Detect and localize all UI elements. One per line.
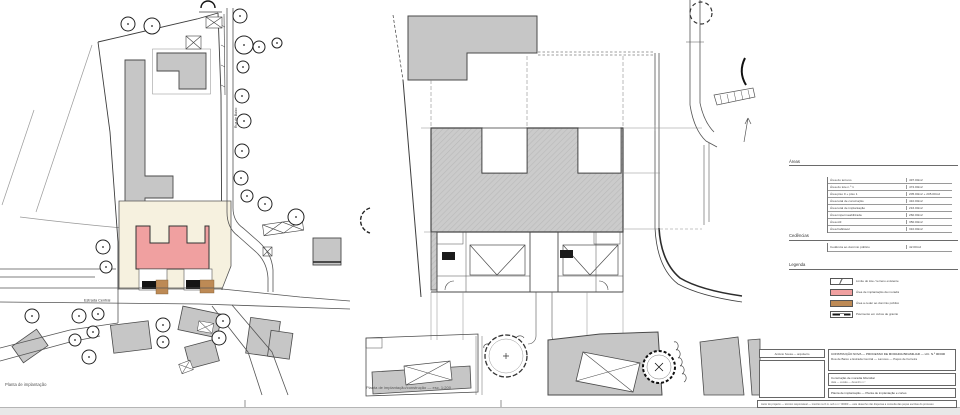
middle-plan: Planta de implantação/construção — esc. … xyxy=(361,0,760,396)
upper-existing-building xyxy=(408,16,537,80)
area-value: 205.00m2 + 205.00m2 xyxy=(906,192,952,196)
cessions-table: Cedência ao domínio público42.00m2 xyxy=(827,243,952,252)
list-item: Pavimento em cubos de granito xyxy=(830,310,958,318)
cession-strip xyxy=(200,280,214,293)
left-plan: Estrada Central Rua de Baixo Planta de i… xyxy=(0,1,350,395)
lower-wing xyxy=(431,232,623,292)
title-block: António Sousa — arquitecto CONSTRUÇÃO NO… xyxy=(757,347,959,408)
cessions-section-title: Cedências xyxy=(789,233,809,238)
cessions-rule xyxy=(789,240,958,241)
area-label: Área total de implantação xyxy=(828,206,906,210)
key-label: Pavimento em cubos de granito xyxy=(856,312,898,316)
areas-section-title: Áreas xyxy=(789,159,800,164)
key-label: Área de implantação da moradia xyxy=(856,290,899,294)
cession-strip xyxy=(156,280,168,294)
table-row: Área total de construção410.00m2 xyxy=(828,198,952,205)
paving-swatch xyxy=(830,311,853,318)
key-rule xyxy=(789,269,958,270)
area-label: Área habitável xyxy=(828,227,906,231)
cession-swatch xyxy=(830,300,853,307)
area-label: Área total de construção xyxy=(828,199,906,203)
area-value: 310.00m2 xyxy=(906,227,952,231)
area-label: Área do lote n.º 1 xyxy=(828,185,906,189)
contour-lines xyxy=(2,45,122,228)
areas-rule xyxy=(789,165,958,166)
area-value: 472.00m2 xyxy=(906,185,952,189)
walkway xyxy=(528,292,560,344)
work-label: Construção de moradia bifamiliar xyxy=(831,376,953,380)
areas-table: Área do terreno497.00m2 Área do lote n.º… xyxy=(827,177,952,233)
key-label: Limite do lote / terreno existente xyxy=(856,279,899,283)
table-row: Área do lote n.º 1472.00m2 xyxy=(828,184,952,191)
key-section-title: Legenda xyxy=(789,262,805,267)
sheet-margin xyxy=(0,407,960,415)
table-row: Área total de implantação216.00m2 xyxy=(828,205,952,212)
lot-swatch xyxy=(830,278,853,285)
list-item: Limite do lote / terreno existente xyxy=(830,277,958,285)
table-row: Área piso 0 + piso 1205.00m2 + 205.00m2 xyxy=(828,191,952,198)
table-row: Área do terreno497.00m2 xyxy=(828,177,952,184)
area-value: 216.00m2 xyxy=(906,206,952,210)
sheet-border xyxy=(245,400,501,407)
table-row: Área impermeabilizada260.00m2 xyxy=(828,212,952,219)
area-label: Área do terreno xyxy=(828,178,906,182)
drawing-sheet: { "colors": { "new_building_pink": "#f0a… xyxy=(0,0,960,415)
area-label: Área piso 0 + piso 1 xyxy=(828,192,906,196)
titleblock-footer: Autor do projecto — técnico responsável … xyxy=(757,400,957,408)
table-row: Cedência ao domínio público42.00m2 xyxy=(828,243,952,252)
project-address: Rua de Baixo e Estrada Central — Lamoso … xyxy=(831,357,953,362)
project-info-box: CONSTRUÇÃO NOVA — PROCESSO DE MORADIA BI… xyxy=(828,349,956,371)
area-value: 350.00m2 xyxy=(906,220,952,224)
cession-value: 42.00m2 xyxy=(906,245,952,249)
street-label: Rua de Baixo xyxy=(234,108,238,128)
left-plan-caption: Planta de implantação xyxy=(5,382,47,387)
implantation-swatch xyxy=(830,289,853,296)
legend-key: Limite do lote / terreno existente Área … xyxy=(830,277,958,321)
key-label: Área a ceder ao domínio público xyxy=(856,301,899,305)
stamp-box xyxy=(759,360,825,398)
middle-plan-caption: Planta de implantação/construção — esc. … xyxy=(366,385,452,390)
area-value: 260.00m2 xyxy=(906,213,952,217)
area-value: 410.00m2 xyxy=(906,199,952,203)
table-row: Área útil350.00m2 xyxy=(828,219,952,226)
area-label: Área útil xyxy=(828,220,906,224)
cession-label: Cedência ao domínio público xyxy=(828,245,906,249)
area-label: Área impermeabilizada xyxy=(828,213,906,217)
table-row: Área habitável310.00m2 xyxy=(828,226,952,233)
work-fields: data — escala — desenho n.º xyxy=(831,381,953,384)
road-label: Estrada Central xyxy=(84,299,111,303)
drawing-box: Planta de implantação — Planta de implan… xyxy=(828,388,956,398)
area-value: 497.00m2 xyxy=(906,178,952,182)
list-item: Área de implantação da moradia xyxy=(830,288,958,296)
list-item: Área a ceder ao domínio público xyxy=(830,299,958,307)
work-box: Construção de moradia bifamiliar data — … xyxy=(828,373,956,386)
architect-box: António Sousa — arquitecto xyxy=(759,349,825,358)
